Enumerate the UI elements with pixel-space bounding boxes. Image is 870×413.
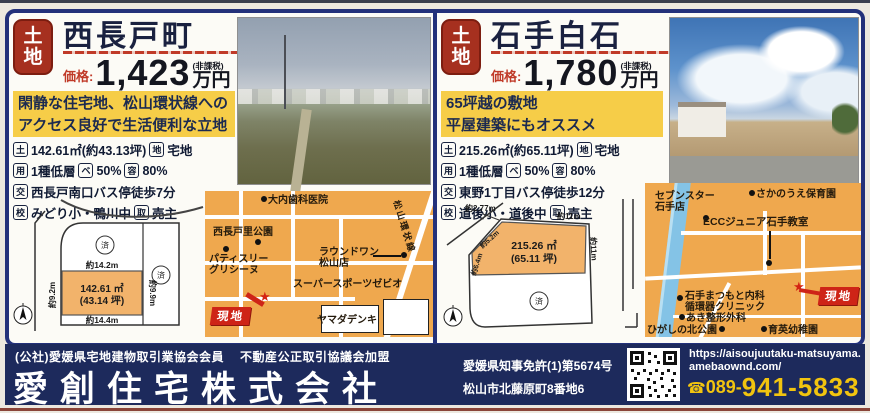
dim-right: 約9.9m [148, 280, 158, 306]
property-title: 石手白石 [491, 11, 623, 55]
lot-diagram: 済 済 約14.2m 142.61 ㎡ (43.14 坪) 約14.4m 約9.… [9, 207, 201, 335]
price-block: 価格: 1,423 (非課税) 万円 [63, 56, 230, 90]
map-label-youchien: 育英幼稚園 [761, 325, 818, 336]
map-dot-icon [223, 246, 229, 252]
map-label-yamada: ヤマダデンキ [317, 315, 377, 326]
spec-line: 用 1種低層 ベ 50% 容 80% [13, 161, 239, 180]
company-address: 松山市北藤原町8番地6 [463, 378, 612, 401]
photo-road [670, 156, 858, 186]
spec-icon-access: 交 [13, 184, 28, 199]
qr-code [627, 348, 680, 401]
lot-area: 142.61 ㎡ [80, 282, 123, 295]
photo-shrub [832, 99, 858, 139]
map-connector [373, 255, 401, 257]
site-marker: 現地 [818, 287, 860, 305]
property-photo [669, 17, 859, 187]
price-unit-stack: (非課税) 万円 [192, 60, 230, 90]
spec-chimoku: 宅地 [167, 140, 192, 159]
photo-houses-strip [238, 89, 430, 104]
highlight-line1: 閑静な住宅地、松山環状線への [18, 93, 230, 115]
map-dot-icon [766, 260, 772, 266]
area-map: 大内歯科医院 松山環状線 西長戸里公園 パティスリー グリシーヌ ラウンドワン … [205, 191, 433, 337]
map-dot-icon [401, 252, 407, 258]
sold-mark: 済 [535, 296, 543, 306]
price-label: 価格: [491, 66, 521, 90]
listing-ishiteshiraishi: 土 地 石手白石 価格: 1,780 (非課税) 万円 65坪越の敷地 平屋建築… [437, 13, 861, 335]
map-label-park: ひがしの北公園 [647, 325, 725, 336]
spec-icon-chimoku: 地 [149, 142, 164, 157]
spec-icon-land: 土 [441, 142, 456, 157]
dim-right: 約11m [588, 237, 599, 261]
map-label-park: 西長戸里公園 [213, 227, 273, 238]
spec-icon-land: 土 [13, 142, 28, 157]
dim-bottom: 約14.4m [86, 315, 119, 325]
spec-zoning: 1種低層 [459, 161, 503, 180]
spec-line: 土 215.26㎡(約65.11坪) 地 宅地 [441, 140, 667, 159]
highlight-line2: アクセス良好で生活便利な立地 [18, 115, 230, 137]
phone-block: ☎ 089- 941-5833 [687, 374, 860, 400]
compass-icon [444, 305, 462, 326]
price-unit: 万円 [192, 72, 230, 90]
lot-diagram: 約2.77m 約11m 約11m 約5.2m 約6.4m 215.26 ㎡ (6… [439, 193, 641, 337]
website-url: https://aisoujuutaku-matsuyama. amebaown… [689, 348, 861, 373]
map-label-xebio: スーパースポーツゼビオ [293, 279, 402, 290]
spec-yoseki: 80% [142, 164, 167, 178]
spec-chimoku: 宅地 [595, 140, 620, 159]
photo-house [678, 102, 727, 137]
page-bottom-rule [0, 408, 870, 411]
spec-kenpei: 50% [524, 164, 549, 178]
sold-mark: 済 [101, 240, 109, 250]
spec-kenpei: 50% [96, 164, 121, 178]
company-footer: (公社)愛媛県宅地建物取引業協会会員 不動産公正取引協議会加盟 愛創住宅株式会社… [5, 344, 865, 405]
property-title: 西長戸町 [63, 11, 195, 55]
license-block: 愛媛県知事免許(1)第5674号 松山市北藤原町8番地6 [463, 355, 612, 401]
land-badge: 土 地 [13, 19, 53, 75]
flyer-page: 土 地 西長戸町 価格: 1,423 (非課税) 万円 閑静な住宅地、松山環状線… [0, 0, 870, 413]
highlight-box: 閑静な住宅地、松山環状線への アクセス良好で生活便利な立地 [13, 91, 235, 137]
map-dot-icon [255, 239, 261, 245]
map-label-sevenstar: セブンスター 石手店 [655, 191, 715, 213]
dim-top2: 約11m [557, 211, 581, 221]
map-road [681, 231, 861, 235]
map-dot-icon [261, 196, 267, 202]
price-unit-stack: (非課税) 万円 [620, 60, 658, 90]
land-badge: 土 地 [441, 19, 481, 75]
lot-tsubo: (65.11 坪) [511, 252, 557, 265]
spec-icon-yoseki: 容 [124, 163, 139, 178]
spec-yoseki: 80% [570, 164, 595, 178]
badge-bottom-char: 地 [23, 47, 42, 68]
ad-frame: 土 地 西長戸町 価格: 1,423 (非課税) 万円 閑静な住宅地、松山環状線… [5, 9, 865, 347]
compass-icon [14, 303, 32, 324]
spec-icon-yoto: 用 [13, 163, 28, 178]
property-photo [237, 17, 431, 185]
lot-area: 215.26 ㎡ [511, 239, 557, 252]
page-top-rule [0, 0, 870, 3]
phone-prefix: 089- [706, 377, 742, 400]
lot-tsubo: (43.14 坪) [80, 294, 124, 307]
map-label-ecc: ECCジュニア石手教室 [703, 217, 808, 228]
photo-path [290, 109, 311, 193]
highlight-line1: 65坪越の敷地 [446, 93, 658, 115]
highlight-box: 65坪越の敷地 平屋建築にもオススメ [441, 91, 663, 137]
price-label: 価格: [63, 66, 93, 90]
price-value: 1,780 [523, 56, 618, 90]
sold-mark: 済 [157, 270, 165, 280]
spec-line: 土 142.61㎡(約43.13坪) 地 宅地 [13, 140, 239, 159]
map-label-naika: 石手まつもと内科 循環器クリニック [685, 291, 765, 313]
company-name: 愛創住宅株式会社 [13, 361, 389, 412]
spec-icon-yoseki: 容 [552, 163, 567, 178]
map-dot-icon [761, 326, 767, 332]
url-line1: https://aisoujuutaku-matsuyama. [689, 348, 861, 361]
price-block: 価格: 1,780 (非課税) 万円 [491, 56, 658, 90]
phone-number: 941-5833 [742, 374, 860, 400]
photo-pole [284, 35, 286, 110]
spec-area: 215.26㎡(約65.11坪) [459, 140, 574, 159]
map-label-patisserie: パティスリー グリシーヌ [209, 254, 268, 276]
spec-zoning: 1種低層 [31, 161, 75, 180]
map-connector [769, 231, 771, 259]
spec-icon-kenpei: ベ [78, 163, 93, 178]
map-label-road: 松山環状線 [390, 199, 417, 255]
spec-line: 用 1種低層 ベ 50% 容 80% [441, 161, 667, 180]
dim-left: 約9.2m [47, 282, 57, 308]
badge-bottom-char: 地 [451, 47, 470, 68]
spec-icon-kenpei: ベ [506, 163, 521, 178]
license-number: 愛媛県知事免許(1)第5674号 [463, 355, 612, 378]
map-dot-icon [679, 314, 685, 320]
badge-top-char: 土 [23, 26, 42, 47]
map-dot-icon [749, 190, 755, 196]
map-dot-icon [677, 295, 683, 301]
map-label-hoikuen: さかのうえ保育園 [749, 189, 836, 200]
spec-icon-chimoku: 地 [577, 142, 592, 157]
area-map: セブンスター 石手店 さかのうえ保育園 ECCジュニア石手教室 ★ 現地 石手ま… [645, 183, 861, 337]
highlight-line2: 平屋建築にもオススメ [446, 115, 658, 137]
map-road [205, 297, 355, 301]
site-marker: 現地 [210, 307, 252, 325]
price-value: 1,423 [95, 56, 190, 90]
badge-top-char: 土 [451, 26, 470, 47]
phone-icon: ☎ [687, 379, 706, 400]
listing-nishinagato: 土 地 西長戸町 価格: 1,423 (非課税) 万円 閑静な住宅地、松山環状線… [9, 13, 433, 335]
map-label-dental: 大内歯科医院 [261, 195, 328, 206]
price-unit: 万円 [620, 72, 658, 90]
dim-top: 約2.77m [465, 203, 496, 213]
map-label-round1: ラウンドワン 松山店 [319, 247, 379, 269]
map-building [383, 299, 429, 335]
spec-icon-yoto: 用 [441, 163, 456, 178]
map-label-seikei: あき整形外科 [679, 313, 746, 324]
dim-top: 約14.2m [86, 260, 119, 270]
spec-area: 142.61㎡(約43.13坪) [31, 140, 146, 159]
map-dot-icon [719, 326, 725, 332]
